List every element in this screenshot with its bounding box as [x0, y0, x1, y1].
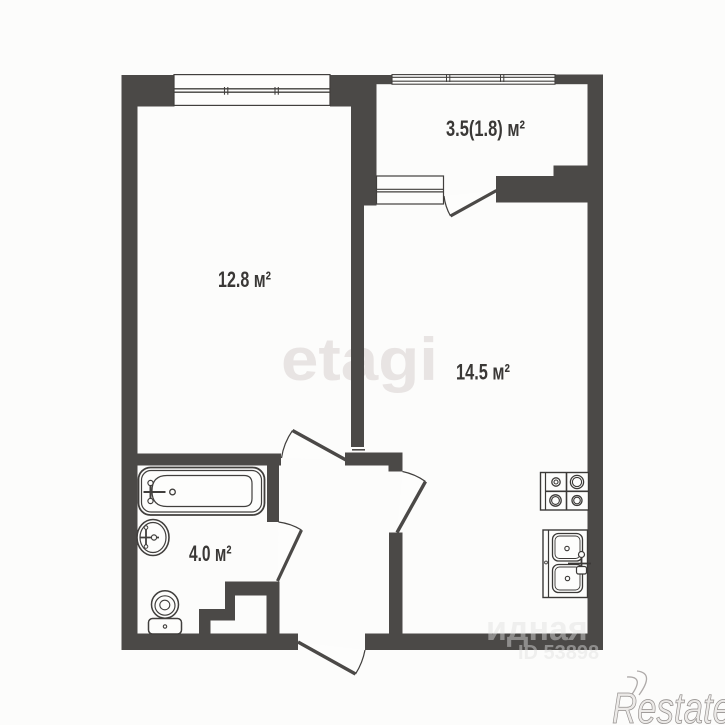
- svg-text:12.8 м²: 12.8 м²: [218, 267, 271, 292]
- svg-text:14.5 м²: 14.5 м²: [456, 360, 510, 385]
- svg-text:3.5(1.8) м²: 3.5(1.8) м²: [446, 116, 525, 141]
- svg-text:Restate: Restate: [612, 684, 725, 725]
- svg-text:4.0 м²: 4.0 м²: [189, 541, 232, 566]
- svg-text:ID 53898: ID 53898: [518, 642, 599, 664]
